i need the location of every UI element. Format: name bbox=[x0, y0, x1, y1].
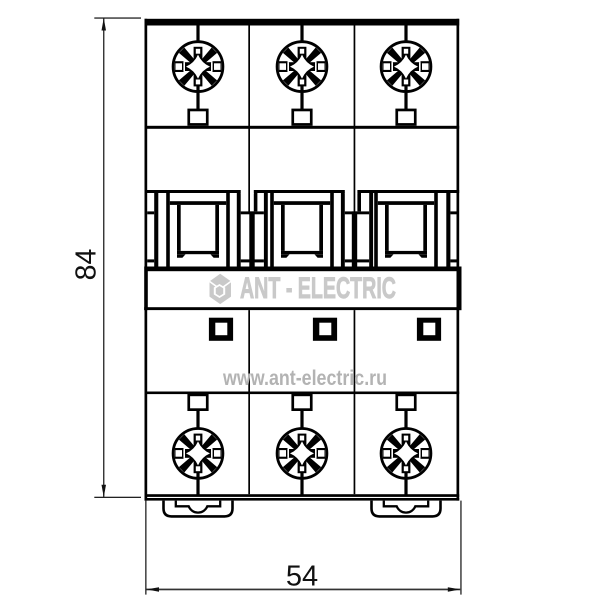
svg-text:54: 54 bbox=[286, 561, 318, 593]
svg-text:www.ant-electric.ru: www.ant-electric.ru bbox=[222, 367, 387, 390]
svg-text:ANT - ELECTRIC: ANT - ELECTRIC bbox=[240, 272, 396, 305]
svg-text:84: 84 bbox=[71, 249, 103, 281]
